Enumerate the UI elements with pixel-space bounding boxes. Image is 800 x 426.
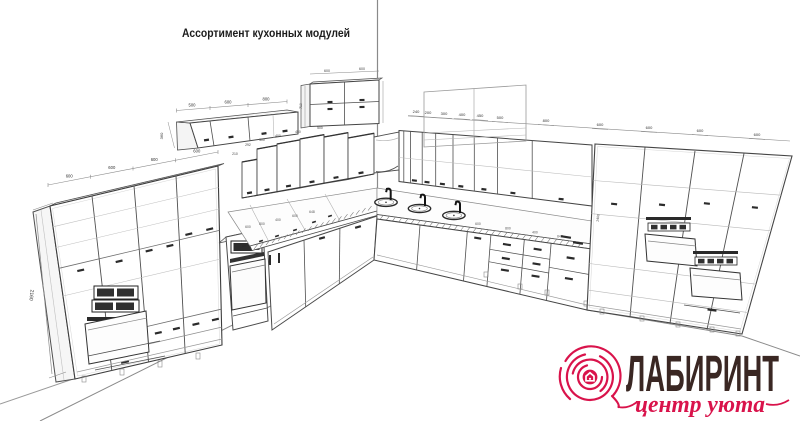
svg-text:292: 292 (245, 143, 251, 147)
svg-text:600: 600 (193, 149, 201, 154)
svg-text:800: 800 (543, 118, 550, 123)
svg-text:400: 400 (459, 112, 466, 117)
svg-text:400: 400 (275, 134, 281, 138)
svg-text:600: 600 (225, 100, 233, 105)
svg-text:2400: 2400 (596, 214, 601, 222)
svg-text:Ассортимент кухонных модулей: Ассортимент кухонных модулей (182, 26, 350, 40)
svg-text:200: 200 (425, 110, 432, 115)
svg-text:800: 800 (263, 97, 271, 102)
svg-text:600: 600 (475, 222, 481, 226)
svg-text:360: 360 (159, 132, 164, 139)
svg-text:центр уюта: центр уюта (635, 392, 765, 418)
svg-text:300: 300 (441, 111, 448, 116)
svg-text:600: 600 (66, 173, 74, 178)
svg-text:800: 800 (259, 222, 265, 226)
svg-text:600: 600 (754, 132, 761, 137)
svg-text:450: 450 (477, 113, 484, 118)
svg-text:400: 400 (275, 218, 281, 222)
svg-text:800: 800 (505, 226, 511, 230)
svg-text:450: 450 (295, 130, 301, 134)
svg-text:600: 600 (108, 165, 116, 170)
svg-text:400: 400 (532, 231, 538, 235)
svg-text:600: 600 (292, 214, 298, 218)
svg-text:600: 600 (597, 122, 604, 127)
svg-text:600: 600 (151, 157, 159, 162)
svg-text:600: 600 (324, 69, 330, 73)
svg-text:500: 500 (189, 103, 197, 108)
svg-text:500: 500 (497, 115, 504, 120)
svg-text:210: 210 (232, 152, 238, 156)
svg-text:2160: 2160 (27, 289, 34, 301)
svg-text:600: 600 (245, 225, 251, 229)
svg-text:710: 710 (299, 103, 303, 109)
svg-text:600: 600 (697, 128, 704, 133)
svg-text:600: 600 (359, 67, 365, 71)
svg-text:600: 600 (646, 125, 653, 130)
svg-text:300: 300 (259, 138, 265, 142)
svg-text:648: 648 (309, 210, 315, 214)
svg-text:240: 240 (413, 109, 420, 114)
